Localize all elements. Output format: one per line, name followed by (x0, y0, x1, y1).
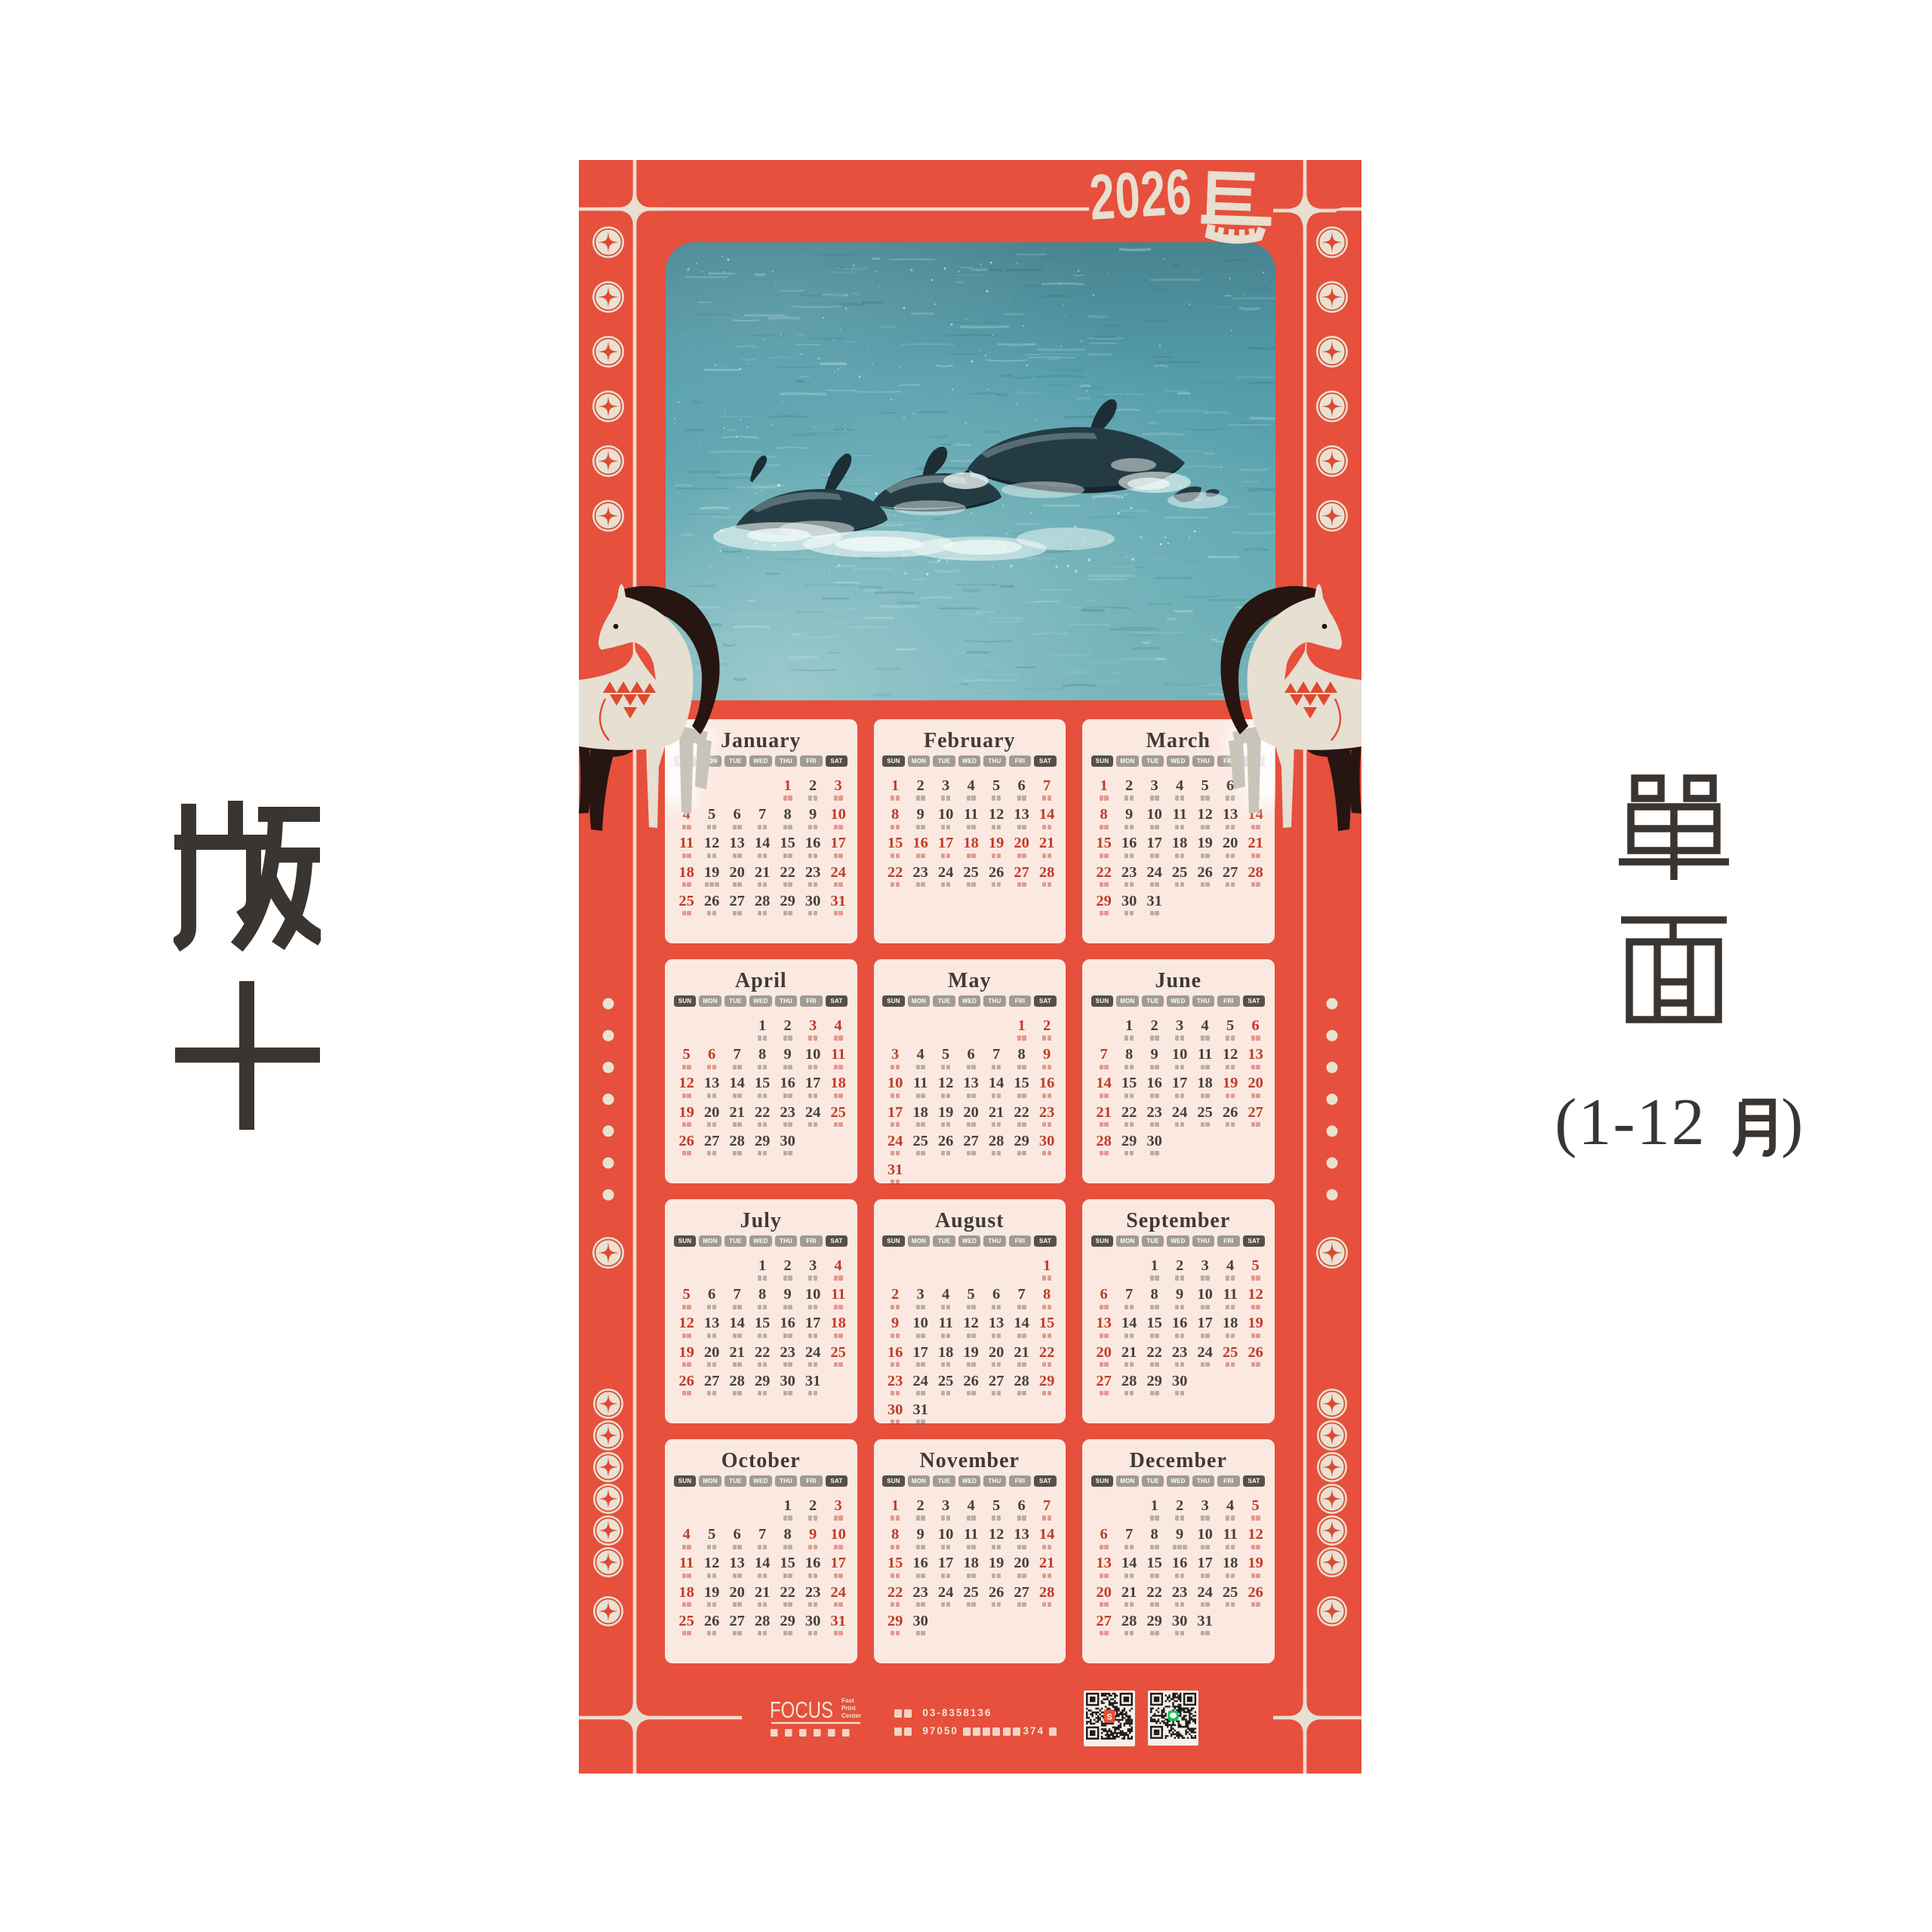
svg-text:Center: Center (841, 1712, 862, 1719)
svg-text:FOCUS: FOCUS (770, 1697, 833, 1723)
svg-text:Print: Print (841, 1705, 856, 1712)
svg-text:Fast: Fast (841, 1697, 854, 1704)
svg-text:S: S (1106, 1713, 1112, 1722)
